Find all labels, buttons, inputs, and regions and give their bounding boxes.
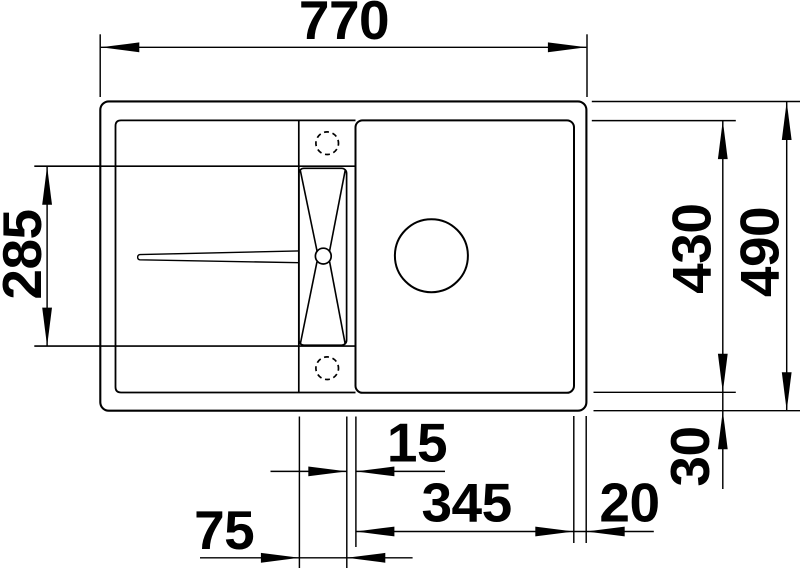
svg-text:15: 15 (387, 412, 447, 474)
svg-text:285: 285 (0, 209, 53, 299)
svg-text:20: 20 (599, 472, 659, 534)
svg-text:345: 345 (421, 472, 511, 534)
svg-text:490: 490 (728, 207, 790, 297)
svg-text:430: 430 (660, 204, 722, 294)
svg-text:75: 75 (194, 499, 254, 561)
svg-text:770: 770 (299, 0, 389, 51)
svg-text:30: 30 (659, 426, 721, 486)
